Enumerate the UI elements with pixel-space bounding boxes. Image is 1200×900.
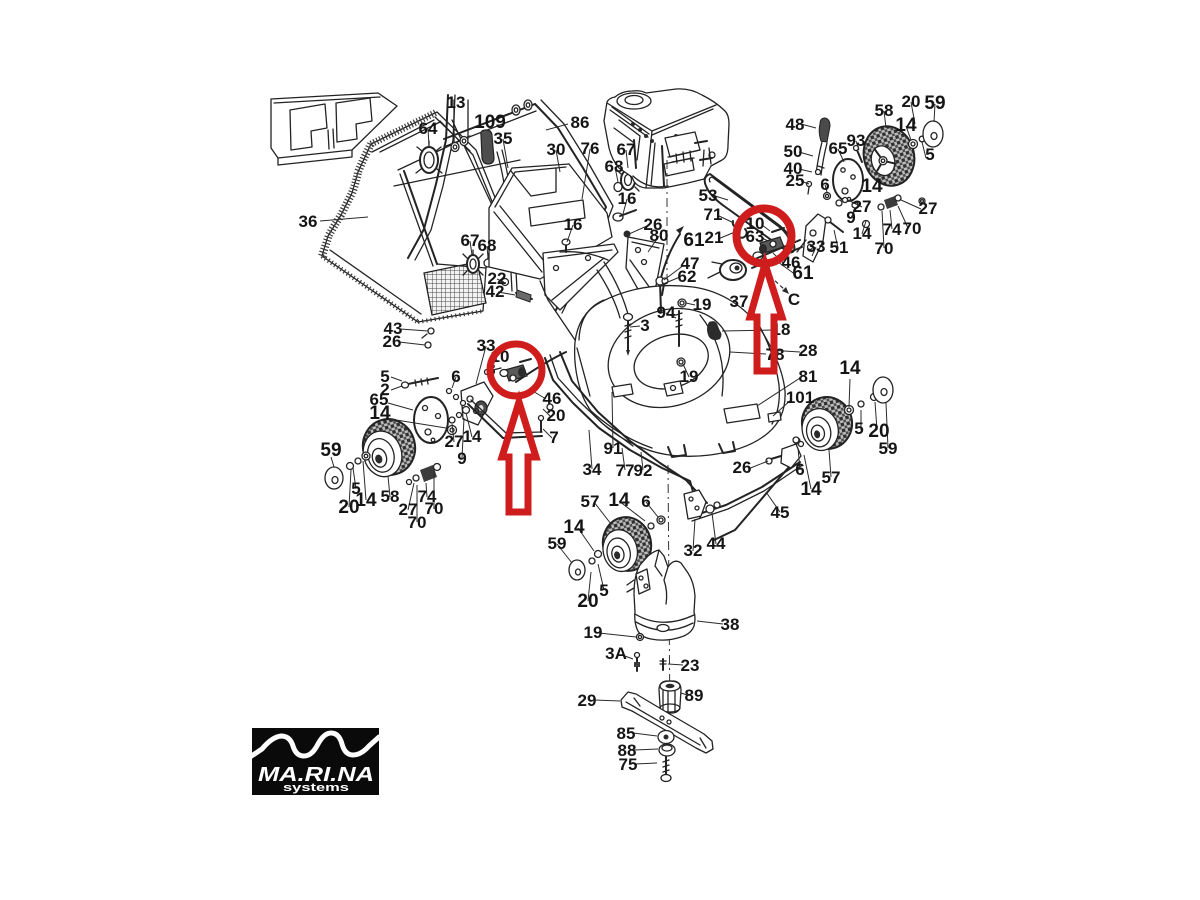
svg-text:70: 70 — [903, 219, 922, 238]
svg-text:44: 44 — [707, 534, 726, 553]
svg-text:6: 6 — [451, 367, 460, 386]
svg-text:16: 16 — [618, 189, 637, 208]
svg-text:28: 28 — [799, 341, 818, 360]
svg-text:14: 14 — [463, 427, 482, 446]
svg-text:14: 14 — [369, 403, 391, 424]
svg-text:68: 68 — [605, 157, 624, 176]
svg-text:58: 58 — [381, 487, 400, 506]
svg-text:14: 14 — [355, 490, 377, 511]
svg-text:61: 61 — [792, 263, 814, 284]
svg-text:101: 101 — [786, 388, 814, 407]
svg-text:14: 14 — [895, 115, 917, 136]
svg-text:5: 5 — [854, 419, 863, 438]
svg-text:33: 33 — [807, 237, 826, 256]
svg-text:42: 42 — [486, 282, 505, 301]
svg-text:6: 6 — [820, 175, 829, 194]
svg-text:27: 27 — [919, 199, 938, 218]
svg-text:63: 63 — [746, 227, 765, 246]
svg-text:58: 58 — [875, 101, 894, 120]
svg-text:45: 45 — [771, 503, 790, 522]
svg-text:75: 75 — [619, 755, 638, 774]
svg-text:70: 70 — [875, 239, 894, 258]
svg-text:16: 16 — [564, 215, 583, 234]
svg-text:34: 34 — [583, 460, 602, 479]
svg-text:3: 3 — [640, 316, 649, 335]
svg-text:62: 62 — [678, 267, 697, 286]
svg-text:91: 91 — [604, 439, 623, 458]
svg-text:26: 26 — [733, 458, 752, 477]
svg-text:77: 77 — [616, 461, 635, 480]
svg-text:14: 14 — [853, 224, 872, 243]
svg-text:93: 93 — [847, 131, 866, 150]
svg-text:92: 92 — [634, 461, 653, 480]
svg-text:89: 89 — [685, 686, 704, 705]
svg-text:5: 5 — [599, 581, 608, 600]
svg-text:64: 64 — [419, 119, 438, 138]
svg-text:20: 20 — [577, 591, 598, 612]
svg-text:37: 37 — [730, 292, 749, 311]
svg-text:30: 30 — [547, 140, 566, 159]
svg-text:51: 51 — [830, 238, 849, 257]
svg-text:38: 38 — [721, 615, 740, 634]
svg-text:74: 74 — [883, 220, 902, 239]
svg-text:systems: systems — [283, 782, 349, 794]
svg-text:3A: 3A — [605, 644, 627, 663]
svg-text:86: 86 — [571, 113, 590, 132]
svg-text:57: 57 — [822, 468, 841, 487]
svg-text:59: 59 — [548, 534, 567, 553]
svg-text:6: 6 — [795, 460, 804, 479]
svg-text:7: 7 — [549, 428, 558, 447]
svg-text:14: 14 — [563, 517, 585, 538]
svg-text:32: 32 — [684, 541, 703, 560]
svg-text:68: 68 — [478, 236, 497, 255]
svg-text:14: 14 — [839, 358, 861, 379]
svg-text:59: 59 — [879, 439, 898, 458]
svg-text:59: 59 — [320, 440, 341, 461]
svg-text:26: 26 — [383, 332, 402, 351]
svg-text:6: 6 — [641, 492, 650, 511]
svg-text:21: 21 — [705, 228, 724, 247]
svg-text:19: 19 — [584, 623, 603, 642]
svg-text:C: C — [788, 290, 800, 309]
svg-text:94: 94 — [657, 303, 676, 322]
svg-text:14: 14 — [608, 490, 630, 511]
svg-text:23: 23 — [681, 656, 700, 675]
svg-text:80: 80 — [650, 226, 669, 245]
svg-text:9: 9 — [457, 449, 466, 468]
svg-text:76: 76 — [581, 139, 600, 158]
svg-text:13: 13 — [447, 93, 466, 112]
svg-text:48: 48 — [786, 115, 805, 134]
svg-text:57: 57 — [581, 492, 600, 511]
svg-text:14: 14 — [861, 176, 883, 197]
svg-text:53: 53 — [699, 186, 718, 205]
svg-text:19: 19 — [680, 367, 699, 386]
svg-text:36: 36 — [299, 212, 318, 231]
svg-text:20: 20 — [902, 92, 921, 111]
svg-text:46: 46 — [543, 389, 562, 408]
svg-text:70: 70 — [425, 499, 444, 518]
svg-text:14: 14 — [800, 479, 822, 500]
svg-text:71: 71 — [704, 205, 723, 224]
svg-text:20: 20 — [547, 406, 566, 425]
svg-text:81: 81 — [799, 367, 818, 386]
svg-text:25: 25 — [786, 171, 805, 190]
svg-text:65: 65 — [829, 139, 848, 158]
svg-text:19: 19 — [693, 295, 712, 314]
svg-text:5: 5 — [925, 145, 934, 164]
svg-text:35: 35 — [494, 129, 513, 148]
svg-text:29: 29 — [578, 691, 597, 710]
svg-text:59: 59 — [924, 93, 945, 114]
svg-text:61: 61 — [683, 230, 705, 251]
